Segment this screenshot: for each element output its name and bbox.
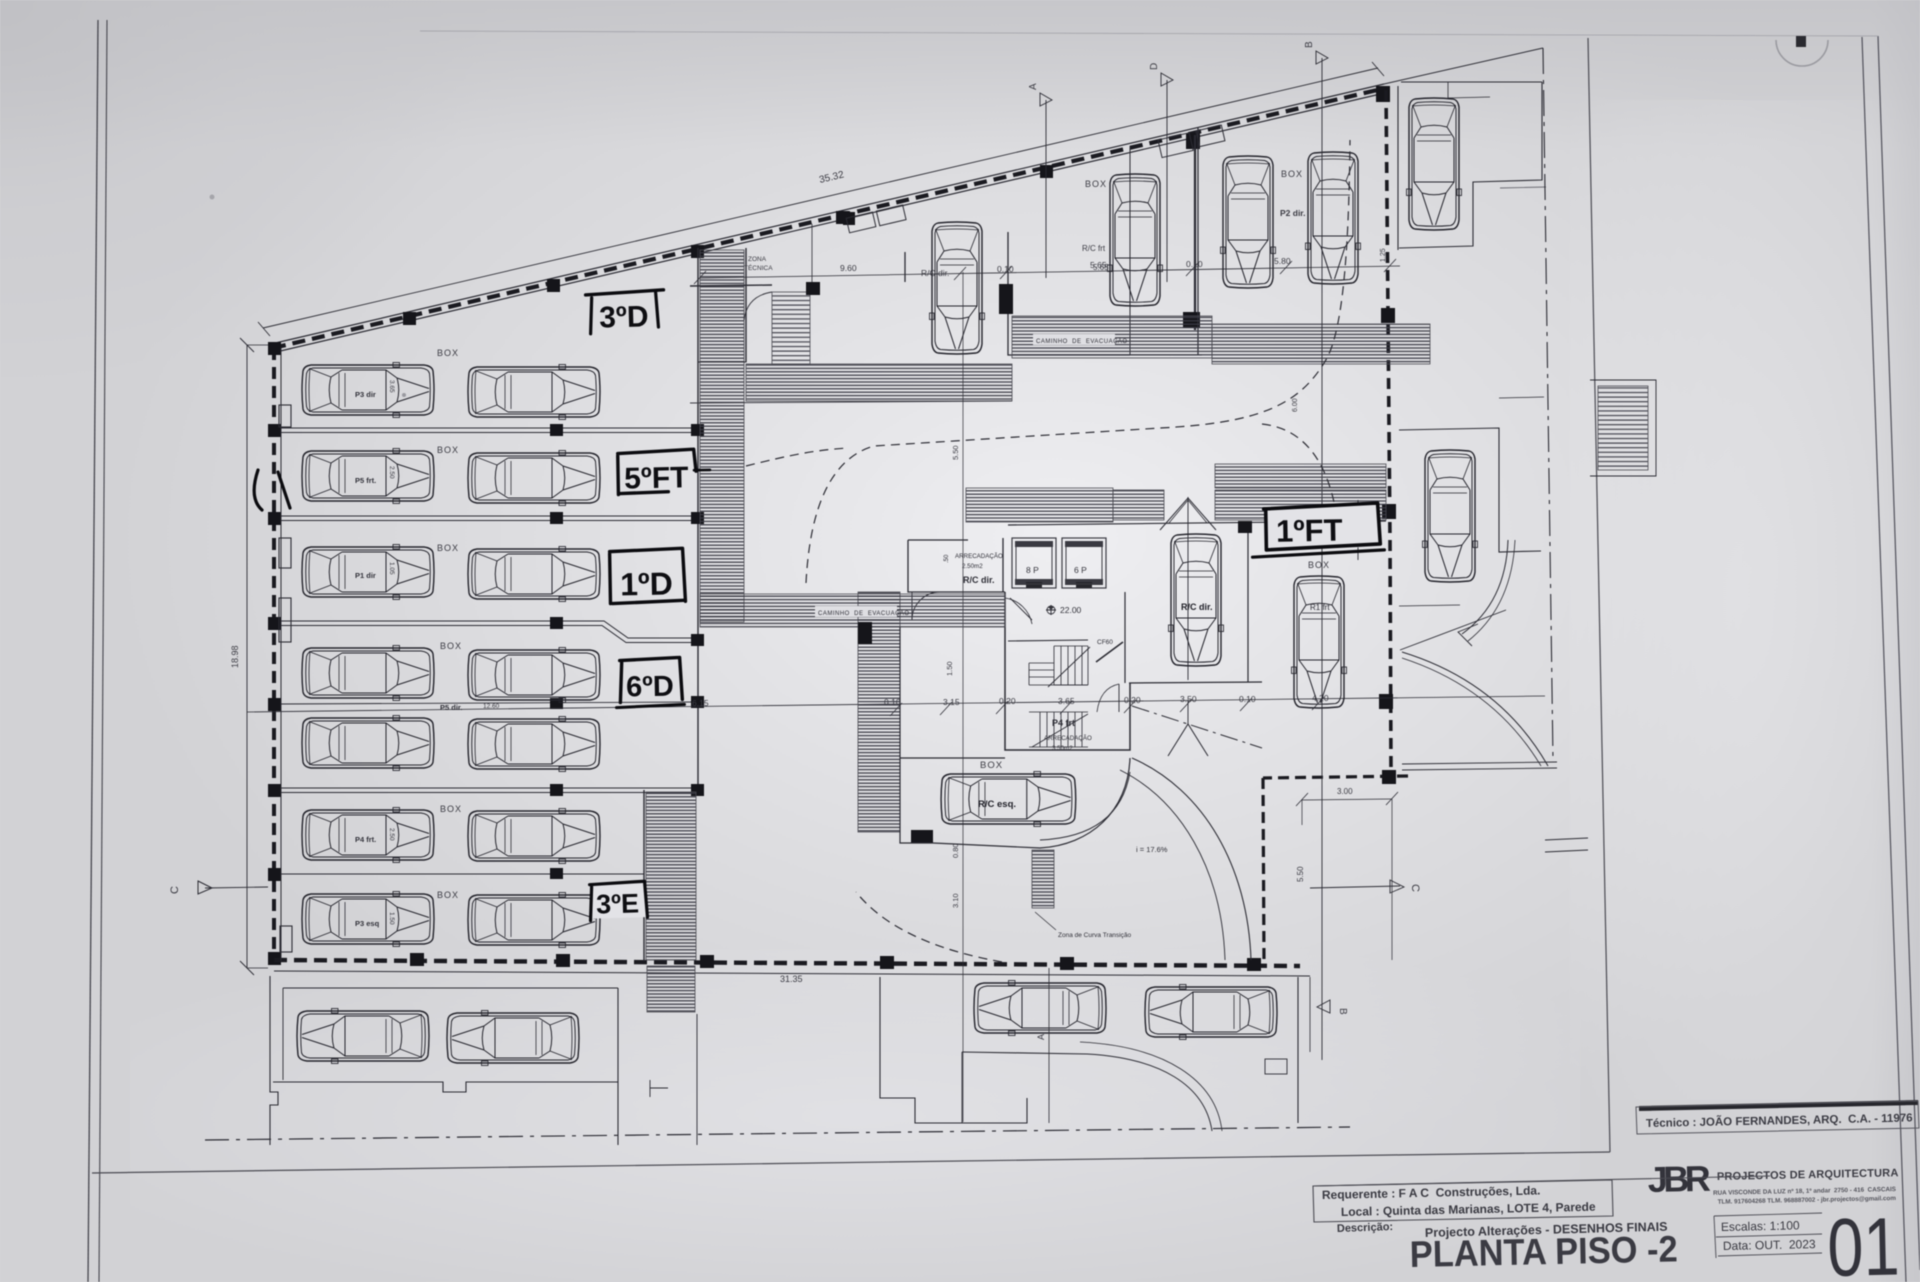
svg-text:Zona de Curva Transição: Zona de Curva Transição — [1058, 932, 1131, 939]
svg-text:ARRECADAÇÃO: ARRECADAÇÃO — [1044, 735, 1092, 742]
svg-text:C: C — [169, 886, 181, 894]
svg-text:i = 17.6%: i = 17.6% — [1136, 845, 1168, 854]
svg-text:8 P: 8 P — [1026, 565, 1039, 575]
svg-text:5.65: 5.65 — [1093, 263, 1109, 272]
svg-text:R/C dir.: R/C dir. — [963, 575, 995, 585]
svg-text:BOX: BOX — [440, 641, 462, 651]
svg-text:BOX: BOX — [437, 348, 459, 358]
svg-text:1.05: 1.05 — [388, 562, 395, 575]
svg-text:Escalas: 1:100: Escalas: 1:100 — [1721, 1218, 1800, 1234]
svg-text:A: A — [1028, 83, 1039, 90]
svg-text:3.10: 3.10 — [951, 893, 960, 908]
svg-text:1.25: 1.25 — [1380, 248, 1387, 262]
svg-text:22.00: 22.00 — [1060, 605, 1082, 615]
svg-text:P1 dir: P1 dir — [355, 571, 376, 580]
svg-text:2.50m2: 2.50m2 — [962, 563, 983, 570]
svg-text:TÉCNICA: TÉCNICA — [744, 263, 773, 272]
svg-text:Data: OUT. 2023: Data: OUT. 2023 — [1723, 1237, 1816, 1253]
svg-text:1ºFT: 1ºFT — [1276, 513, 1343, 549]
svg-text:R/C esq.: R/C esq. — [978, 799, 1016, 810]
svg-text:P5 frt.: P5 frt. — [355, 476, 376, 485]
svg-text:P4 frt: P4 frt — [1052, 718, 1075, 728]
svg-text:6ºD: 6ºD — [626, 671, 674, 704]
svg-text:C: C — [1409, 884, 1421, 892]
svg-text:1.50: 1.50 — [945, 661, 954, 676]
svg-text:6.00: 6.00 — [1292, 398, 1299, 412]
svg-text:0.20: 0.20 — [1124, 695, 1141, 705]
svg-text:2.50: 2.50 — [388, 828, 395, 841]
svg-text:3.65: 3.65 — [388, 380, 395, 393]
svg-text:R/C dir.: R/C dir. — [1181, 602, 1213, 612]
svg-text:3ºD: 3ºD — [599, 300, 649, 334]
svg-text:B: B — [1304, 41, 1315, 48]
svg-text:.50: .50 — [944, 554, 950, 563]
svg-text:P5 dir.: P5 dir. — [440, 703, 463, 712]
svg-text:ARRECADAÇÃO: ARRECADAÇÃO — [955, 553, 1003, 560]
svg-text:5.50: 5.50 — [1296, 866, 1305, 882]
svg-text:0.80: 0.80 — [951, 843, 960, 858]
svg-text:0.10: 0.10 — [997, 264, 1014, 274]
svg-text:1.50: 1.50 — [388, 912, 395, 925]
svg-text:3.15: 3.15 — [943, 697, 960, 707]
svg-text:6.15: 6.15 — [692, 698, 709, 708]
svg-text:P2 dir.: P2 dir. — [1280, 208, 1306, 218]
svg-text:A: A — [1036, 1034, 1046, 1040]
svg-text:3.50m2: 3.50m2 — [1052, 745, 1073, 752]
svg-text:CF60: CF60 — [1097, 639, 1113, 646]
svg-text:P4 frt.: P4 frt. — [355, 835, 376, 844]
svg-text:Descrição:: Descrição: — [1337, 1221, 1394, 1235]
svg-text:3.65: 3.65 — [1058, 696, 1075, 706]
svg-text:D: D — [1149, 63, 1160, 70]
svg-text:BOX: BOX — [1085, 179, 1107, 189]
svg-text:9.60: 9.60 — [840, 263, 857, 273]
svg-text:6 P: 6 P — [1074, 565, 1087, 575]
svg-text:BOX: BOX — [437, 445, 459, 455]
svg-text:0.10: 0.10 — [1239, 694, 1256, 704]
svg-text:2.50: 2.50 — [388, 466, 395, 479]
svg-text:R1 frt: R1 frt — [1310, 603, 1330, 612]
svg-text:ZONA: ZONA — [748, 256, 767, 263]
svg-text:BOX: BOX — [1281, 169, 1303, 179]
svg-text:5.50: 5.50 — [951, 445, 960, 460]
svg-text:P3 esq: P3 esq — [355, 919, 380, 928]
svg-text:3ºE: 3ºE — [596, 888, 640, 919]
svg-text:BOX: BOX — [437, 890, 459, 900]
svg-text:CAMINHO DE EVACUAÇÃO: CAMINHO DE EVACUAÇÃO — [818, 610, 910, 617]
svg-text:31.35: 31.35 — [780, 974, 803, 984]
svg-text:P3 dir: P3 dir — [355, 390, 376, 399]
svg-text:BOX: BOX — [437, 543, 459, 553]
svg-text:CAMINHO DE EVACUAÇÃO: CAMINHO DE EVACUAÇÃO — [1036, 338, 1128, 345]
svg-text:1ºD: 1ºD — [620, 566, 673, 603]
svg-text:BOX: BOX — [1308, 560, 1330, 570]
svg-text:BOX: BOX — [440, 804, 462, 814]
svg-text:B: B — [1337, 1008, 1348, 1015]
svg-text:5ºFT: 5ºFT — [624, 461, 689, 495]
svg-text:0.20: 0.20 — [999, 696, 1016, 706]
svg-text:BOX: BOX — [980, 760, 1003, 771]
svg-text:01: 01 — [1826, 1202, 1900, 1282]
svg-text:R/C frt: R/C frt — [1082, 244, 1106, 253]
svg-text:PLANTA PISO -2: PLANTA PISO -2 — [1409, 1228, 1678, 1275]
svg-text:5.80: 5.80 — [1274, 256, 1291, 266]
svg-text:3.00: 3.00 — [1337, 787, 1353, 796]
svg-text:18.98: 18.98 — [230, 645, 240, 668]
